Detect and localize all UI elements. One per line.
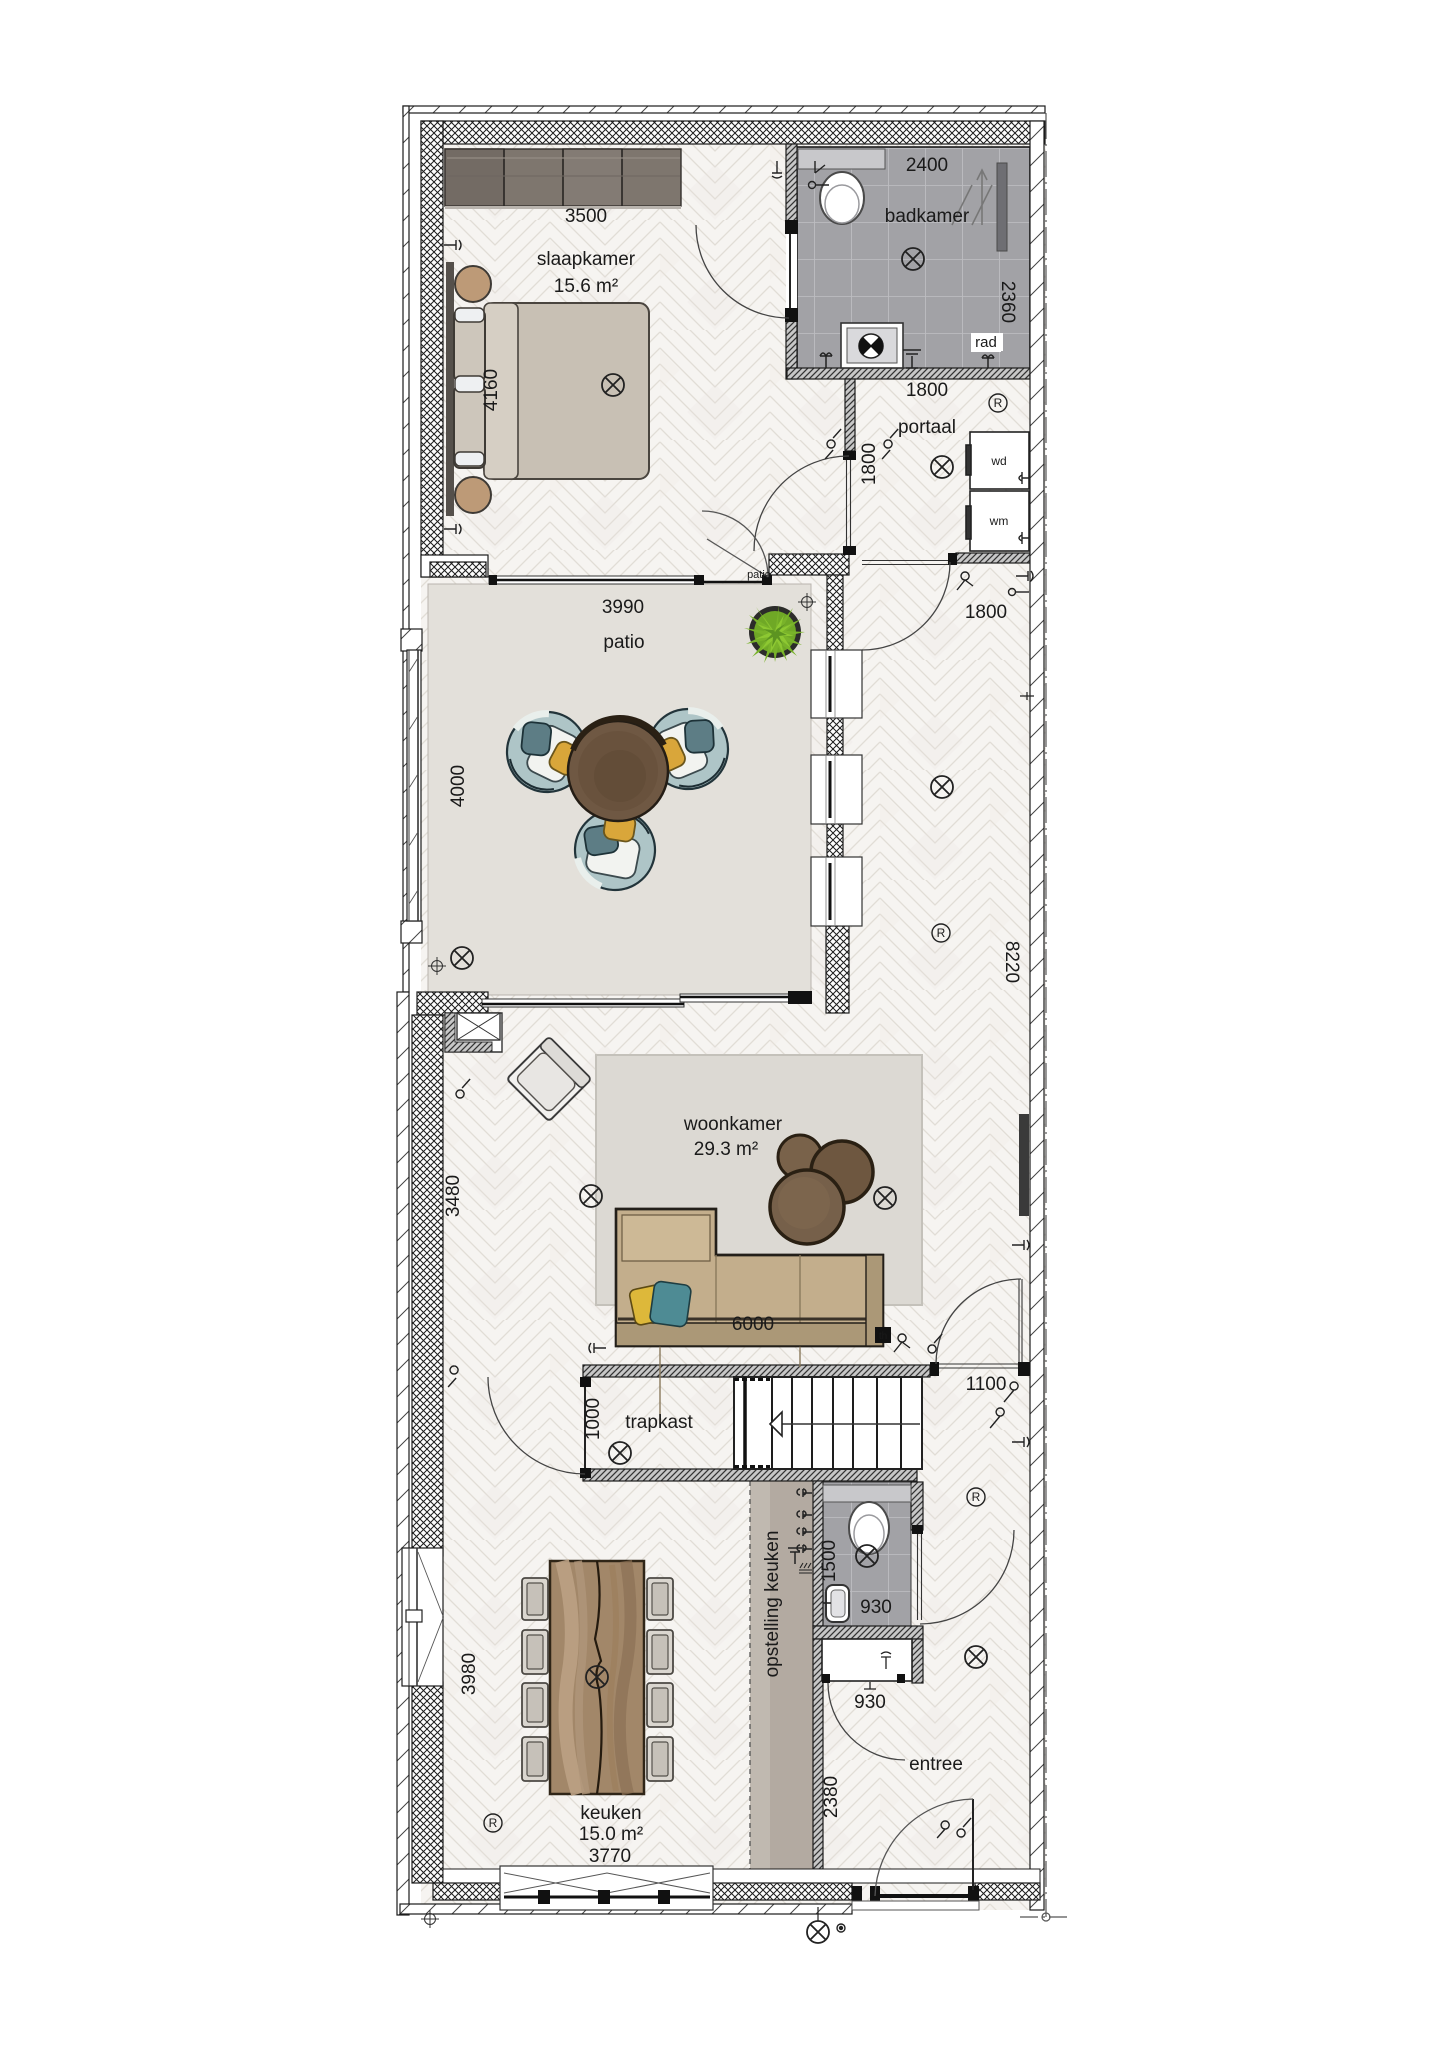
svg-text:wm: wm xyxy=(989,514,1009,528)
svg-text:3500: 3500 xyxy=(565,206,607,227)
svg-text:1000: 1000 xyxy=(583,1398,604,1440)
svg-text:opstelling keuken: opstelling keuken xyxy=(762,1531,783,1678)
svg-text:29.3 m²: 29.3 m² xyxy=(694,1139,758,1160)
svg-text:1800: 1800 xyxy=(906,380,948,401)
svg-text:portaal: portaal xyxy=(898,417,956,438)
svg-text:patio: patio xyxy=(747,569,771,581)
svg-text:keuken: keuken xyxy=(580,1803,641,1824)
svg-text:3980: 3980 xyxy=(459,1653,480,1695)
svg-text:930: 930 xyxy=(860,1597,892,1618)
svg-text:1800: 1800 xyxy=(859,443,880,485)
svg-text:3990: 3990 xyxy=(602,597,644,618)
svg-text:2360: 2360 xyxy=(997,281,1018,323)
svg-text:2380: 2380 xyxy=(821,1776,842,1818)
svg-text:3480: 3480 xyxy=(443,1175,464,1217)
svg-text:patio: patio xyxy=(603,632,644,653)
svg-text:3770: 3770 xyxy=(589,1846,631,1867)
svg-text:930: 930 xyxy=(854,1692,886,1713)
svg-text:6000: 6000 xyxy=(732,1314,774,1335)
svg-text:wd: wd xyxy=(990,454,1006,468)
svg-text:4160: 4160 xyxy=(481,369,502,411)
svg-text:badkamer: badkamer xyxy=(885,206,970,227)
svg-text:4000: 4000 xyxy=(448,765,469,807)
svg-text:15.6 m²: 15.6 m² xyxy=(554,276,618,297)
svg-text:slaapkamer: slaapkamer xyxy=(537,249,636,270)
svg-text:2400: 2400 xyxy=(906,155,948,176)
svg-text:rad: rad xyxy=(975,334,997,351)
svg-text:trapkast: trapkast xyxy=(625,1412,693,1433)
svg-text:th: th xyxy=(879,1331,887,1342)
svg-text:entree: entree xyxy=(909,1754,963,1775)
svg-text:woonkamer: woonkamer xyxy=(683,1114,783,1135)
svg-text:8220: 8220 xyxy=(1001,941,1022,983)
svg-text:1100: 1100 xyxy=(966,1374,1007,1395)
svg-text:1500: 1500 xyxy=(819,1540,840,1582)
svg-text:15.0 m²: 15.0 m² xyxy=(579,1824,643,1845)
svg-text:1800: 1800 xyxy=(965,602,1007,623)
